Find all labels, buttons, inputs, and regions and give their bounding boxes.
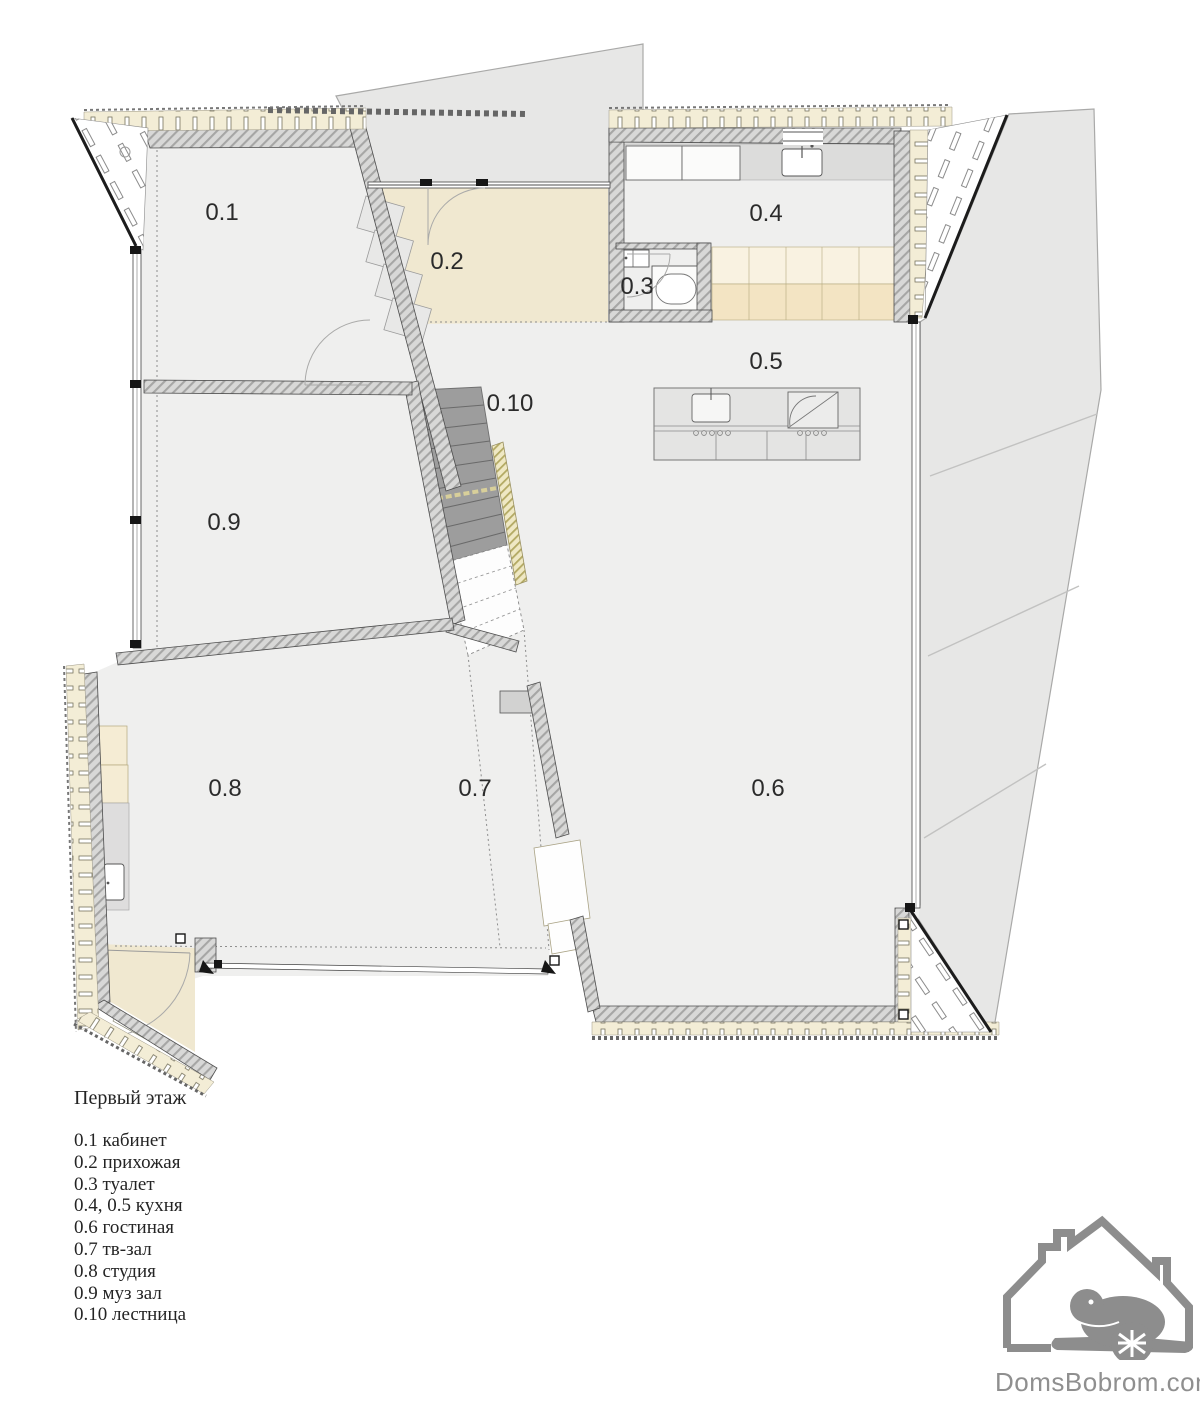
legend-title: Первый этаж [74, 1087, 186, 1110]
floor-plan-page: 0.1 0.2 0.3 0.4 0.5 0.6 0.7 0.8 0.9 0.10… [0, 0, 1200, 1406]
wall-toilet-south [609, 310, 712, 322]
wall-kitchen-east [894, 131, 910, 322]
kitchen-island [654, 388, 860, 460]
wall-living-south [592, 1006, 899, 1022]
wall-toilet-east [697, 243, 711, 317]
room-label-0-2: 0.2 [430, 248, 463, 275]
legend-item: 0.8 студия [74, 1261, 186, 1283]
room-label-0-5: 0.5 [749, 348, 782, 375]
wall-room9-north [144, 380, 412, 395]
legend-item: 0.6 гостиная [74, 1217, 186, 1239]
logo-site-text: DomsBobrom.com [995, 1367, 1195, 1398]
logo-graphic [995, 1210, 1195, 1360]
wall-kitchen-north [609, 128, 901, 144]
legend-item: 0.2 прихожая [74, 1152, 186, 1174]
studio-sink [104, 864, 124, 900]
room-label-0-8: 0.8 [208, 775, 241, 802]
room-label-0-4: 0.4 [749, 200, 782, 227]
door-symbol [476, 179, 488, 186]
room-label-0-10: 0.10 [487, 390, 534, 417]
legend-item: 0.1 кабинет [74, 1130, 186, 1152]
door-symbol [420, 179, 432, 186]
room-label-0-6: 0.6 [751, 775, 784, 802]
kitchen-counter [624, 144, 896, 180]
legend-item: 0.7 тв-зал [74, 1239, 186, 1261]
legend-item: 0.9 муз зал [74, 1283, 186, 1305]
kitchen-window [783, 129, 823, 145]
wall-toilet-north [616, 243, 710, 249]
insulation-top-right [609, 107, 952, 128]
legend-item: 0.10 лестница [74, 1304, 186, 1326]
room-label-0-1: 0.1 [205, 199, 238, 226]
kitchen-cabinets [712, 247, 896, 320]
room-label-0-9: 0.9 [207, 509, 240, 536]
legend-item: 0.3 туалет [74, 1174, 186, 1196]
legend: Первый этаж 0.1 кабинет 0.2 прихожая 0.3… [74, 1087, 186, 1326]
room-label-0-7: 0.7 [458, 775, 491, 802]
logo-beaver-icon [1051, 1289, 1193, 1360]
logo: DomsBobrom.com [995, 1210, 1195, 1398]
legend-items: 0.1 кабинет 0.2 прихожая 0.3 туалет 0.4,… [74, 1130, 186, 1326]
room-label-0-3: 0.3 [620, 273, 653, 300]
legend-item: 0.4, 0.5 кухня [74, 1195, 186, 1217]
